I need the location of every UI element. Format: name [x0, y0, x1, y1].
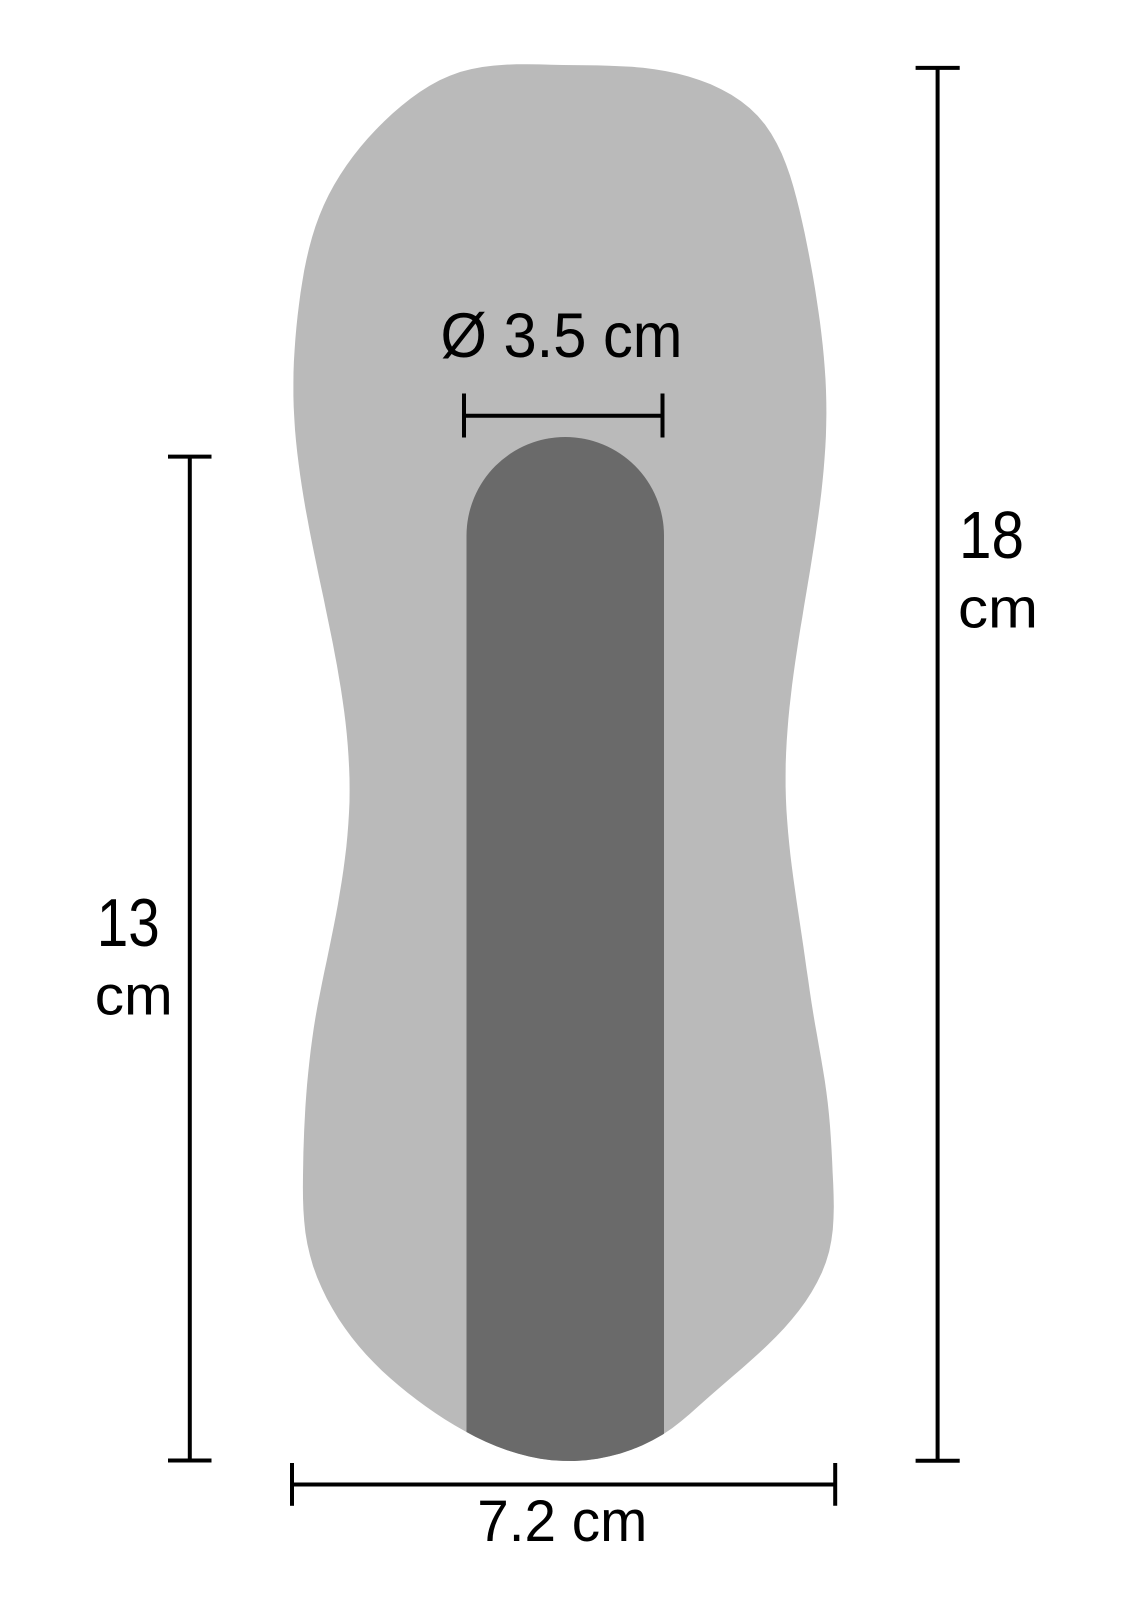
svg-text:13: 13	[97, 885, 160, 961]
svg-text:18: 18	[959, 498, 1024, 573]
svg-text:cm: cm	[95, 964, 173, 1027]
svg-text:cm: cm	[958, 577, 1038, 641]
svg-text:7.2 cm: 7.2 cm	[477, 1489, 647, 1554]
svg-text:Ø 3.5 cm: Ø 3.5 cm	[441, 301, 683, 371]
